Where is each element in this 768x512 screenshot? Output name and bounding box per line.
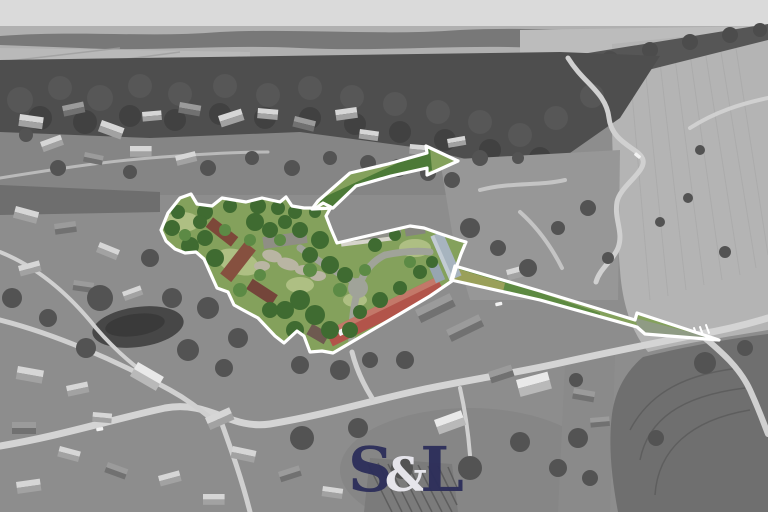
watermark-letter-l: L [420, 433, 463, 506]
aerial-photo: S&L [0, 0, 768, 512]
sky [0, 0, 768, 30]
